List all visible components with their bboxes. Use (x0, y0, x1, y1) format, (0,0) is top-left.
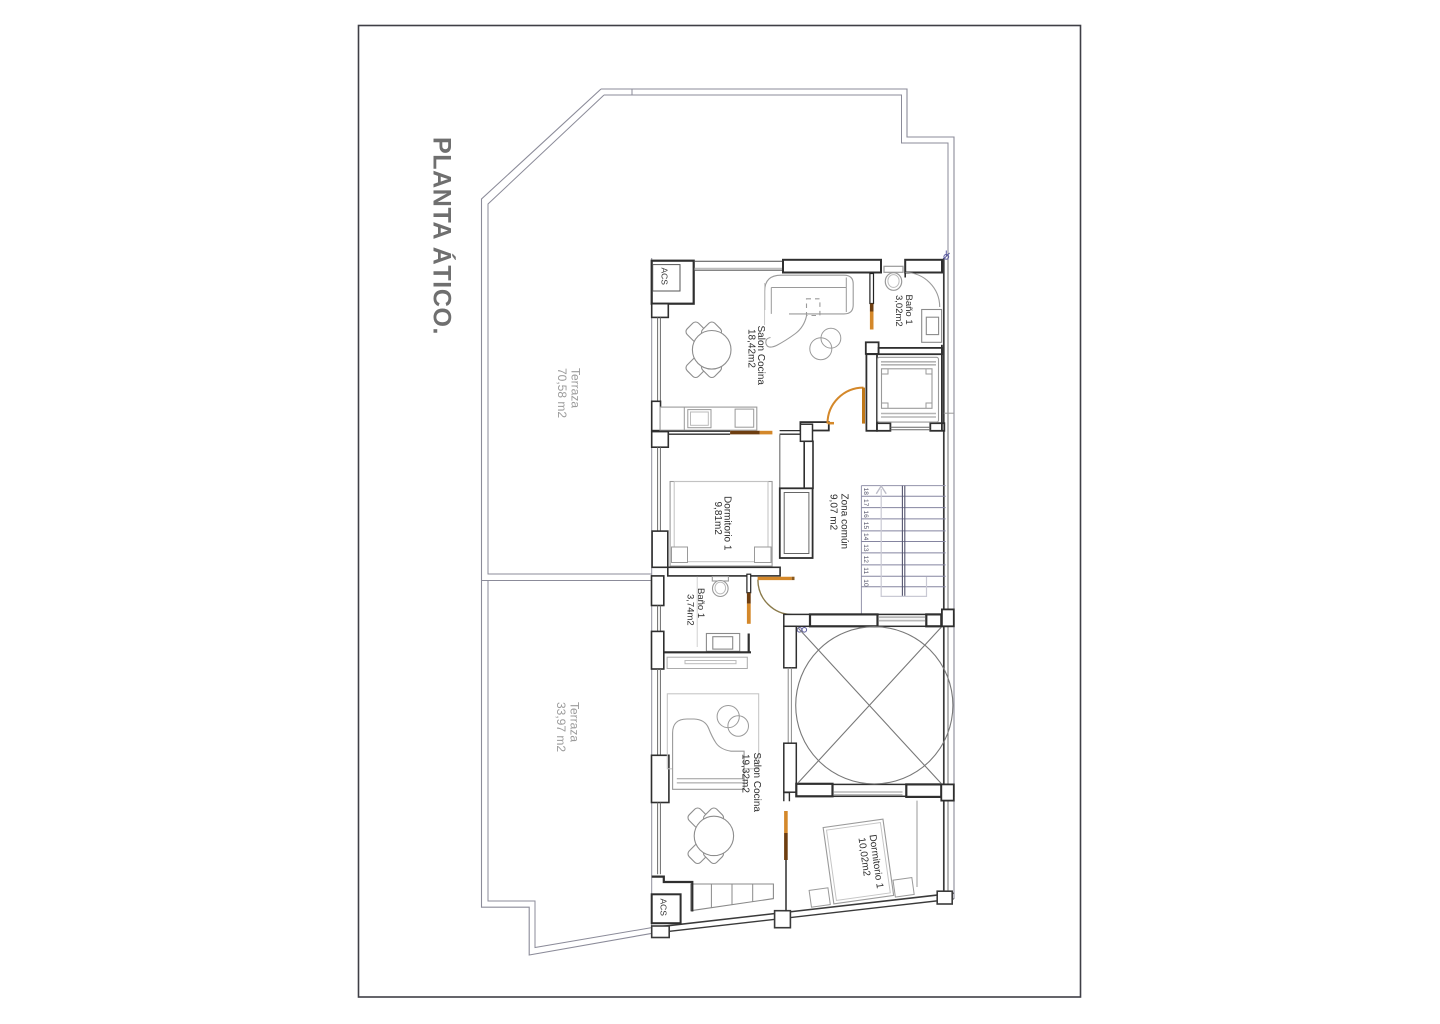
svg-text:3,02m2: 3,02m2 (893, 295, 904, 327)
svg-text:Zona común: Zona común (838, 494, 849, 550)
svg-text:9,07 m2: 9,07 m2 (827, 494, 838, 531)
svg-text:11: 11 (862, 567, 869, 574)
svg-text:15: 15 (862, 522, 869, 530)
svg-text:ACS: ACS (660, 268, 670, 286)
svg-text:18: 18 (862, 488, 869, 496)
svg-text:70,58 m2: 70,58 m2 (555, 368, 569, 418)
svg-text:Terraza: Terraza (569, 368, 583, 408)
svg-text:16: 16 (862, 510, 869, 518)
svg-text:Salon Cocina: Salon Cocina (751, 753, 762, 813)
svg-text:17: 17 (862, 499, 869, 507)
svg-text:12: 12 (862, 556, 869, 564)
svg-text:33,97 m2: 33,97 m2 (554, 702, 568, 752)
svg-text:3,74m2: 3,74m2 (685, 594, 696, 626)
svg-text:18,42m2: 18,42m2 (746, 329, 757, 368)
svg-text:13: 13 (862, 544, 869, 552)
svg-text:9,81m2: 9,81m2 (712, 502, 723, 536)
svg-text:14: 14 (862, 533, 869, 541)
svg-text:PLANTA ÁTICO.: PLANTA ÁTICO. (428, 137, 457, 335)
svg-text:Terraza: Terraza (568, 702, 582, 742)
svg-text:ACS: ACS (659, 899, 669, 917)
svg-text:19,32m2: 19,32m2 (740, 754, 751, 793)
svg-text:10: 10 (862, 579, 869, 587)
